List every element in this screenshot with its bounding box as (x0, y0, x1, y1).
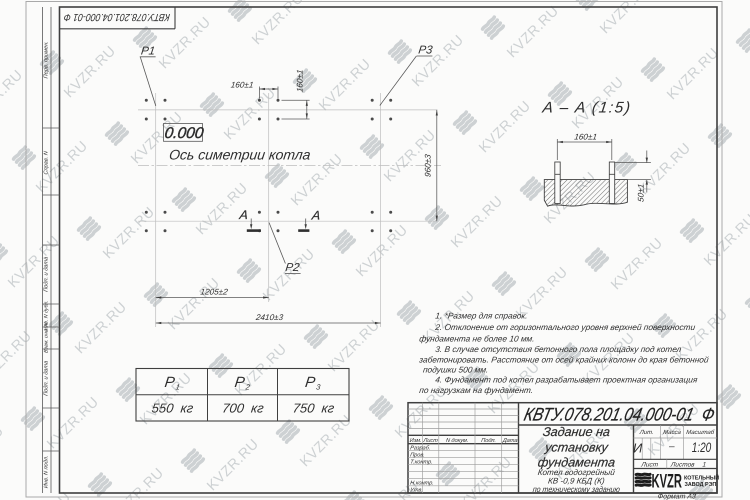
svg-text:Утв.: Утв. (409, 487, 423, 493)
svg-text:Изм.: Изм. (409, 438, 422, 444)
svg-text:Взам. инв. N: Взам. инв. N (43, 322, 49, 353)
svg-text:КОТЕЛЬНЫЙ: КОТЕЛЬНЫЙ (684, 473, 719, 481)
svg-text:Разраб.: Разраб. (410, 445, 431, 451)
svg-text:подушки 500 мм.: подушки 500 мм. (422, 365, 489, 375)
svg-text:750 кг: 750 кг (292, 401, 336, 416)
svg-text:50±1: 50±1 (636, 183, 645, 202)
svg-text:1. *Размер для справок.: 1. *Размер для справок. (435, 311, 529, 321)
svg-text:Лист: Лист (422, 438, 438, 444)
svg-text:N докум.: N докум. (445, 438, 468, 444)
svg-text:1205±2: 1205±2 (200, 287, 229, 296)
svg-text:Дата: Дата (501, 438, 517, 444)
svg-text:Справ. N: Справ. N (43, 150, 49, 175)
svg-text:установку: установку (543, 440, 609, 454)
svg-text:A: A (238, 208, 249, 222)
svg-text:550 кг: 550 кг (151, 401, 195, 416)
svg-text:P3: P3 (418, 45, 434, 57)
svg-text:КВТУ.078.201.04.000-01 Ф: КВТУ.078.201.04.000-01 Ф (63, 11, 170, 22)
svg-text:160±1: 160±1 (295, 69, 304, 93)
svg-text:забетонировать. Расстояние от: забетонировать. Расстояние от осей крайн… (418, 354, 710, 364)
svg-text:2410±3: 2410±3 (254, 313, 284, 322)
svg-text:Формат А3: Формат А3 (657, 494, 696, 500)
svg-text:160±1: 160±1 (230, 81, 254, 90)
svg-text:0.000: 0.000 (164, 125, 205, 142)
svg-text:Масса: Масса (663, 430, 682, 436)
svg-text:700 кг: 700 кг (221, 401, 265, 416)
svg-text:Инв. N подл.: Инв. N подл. (43, 455, 49, 488)
svg-text:160±1: 160±1 (574, 132, 598, 141)
svg-text:P1: P1 (140, 46, 156, 58)
svg-text:Подп. и дата: Подп. и дата (43, 257, 49, 293)
svg-text:–: – (668, 442, 675, 453)
svg-text:КВТУ.078.201.04.000-01 Ф: КВТУ.078.201.04.000-01 Ф (522, 404, 717, 425)
svg-text:Лит.: Лит. (638, 430, 654, 436)
svg-text:1:20: 1:20 (692, 439, 712, 455)
svg-text:Т.контр.: Т.контр. (410, 459, 433, 465)
svg-text:Перв. примен.: Перв. примен. (43, 41, 49, 79)
svg-text:Масштаб: Масштаб (686, 430, 715, 436)
svg-text:фундамента не более 10 мм.: фундамента не более 10 мм. (419, 334, 536, 344)
svg-text:по нагрузкам на фундамент.: по нагрузкам на фундамент. (419, 385, 534, 395)
svg-text:по техническому заданию: по техническому заданию (532, 485, 620, 494)
svg-text:Подп. и дата: Подп. и дата (43, 361, 49, 397)
svg-text:2. Отклонение от горизонтально: 2. Отклонение от горизонтального уровня … (434, 322, 696, 332)
svg-text:A: A (310, 209, 321, 223)
svg-text:Листов: Листов (669, 461, 695, 468)
svg-text:4. Фундамент под котел разраба: 4. Фундамент под котел разрабатывает про… (435, 375, 699, 385)
svg-text:Лист: Лист (640, 461, 659, 468)
svg-text:960±3: 960±3 (424, 153, 433, 177)
svg-text:KVZR: KVZR (652, 471, 683, 492)
svg-text:Пров.: Пров. (410, 452, 425, 458)
svg-text:P2: P2 (285, 262, 301, 274)
svg-text:Задание на: Задание на (542, 425, 611, 439)
svg-text:Подп.: Подп. (481, 438, 497, 444)
svg-text:A – A (1:5): A – A (1:5) (541, 100, 633, 117)
svg-text:ЗАВОД РЭП: ЗАВОД РЭП (685, 482, 717, 488)
svg-text:И: И (633, 441, 643, 456)
svg-text:Ось симетрии котла: Ось симетрии котла (168, 147, 311, 163)
svg-text:3. В случае отсутствия бетонно: 3. В случае отсутствия бетонного пола пл… (435, 344, 682, 354)
svg-text:Н.контр.: Н.контр. (410, 480, 434, 486)
